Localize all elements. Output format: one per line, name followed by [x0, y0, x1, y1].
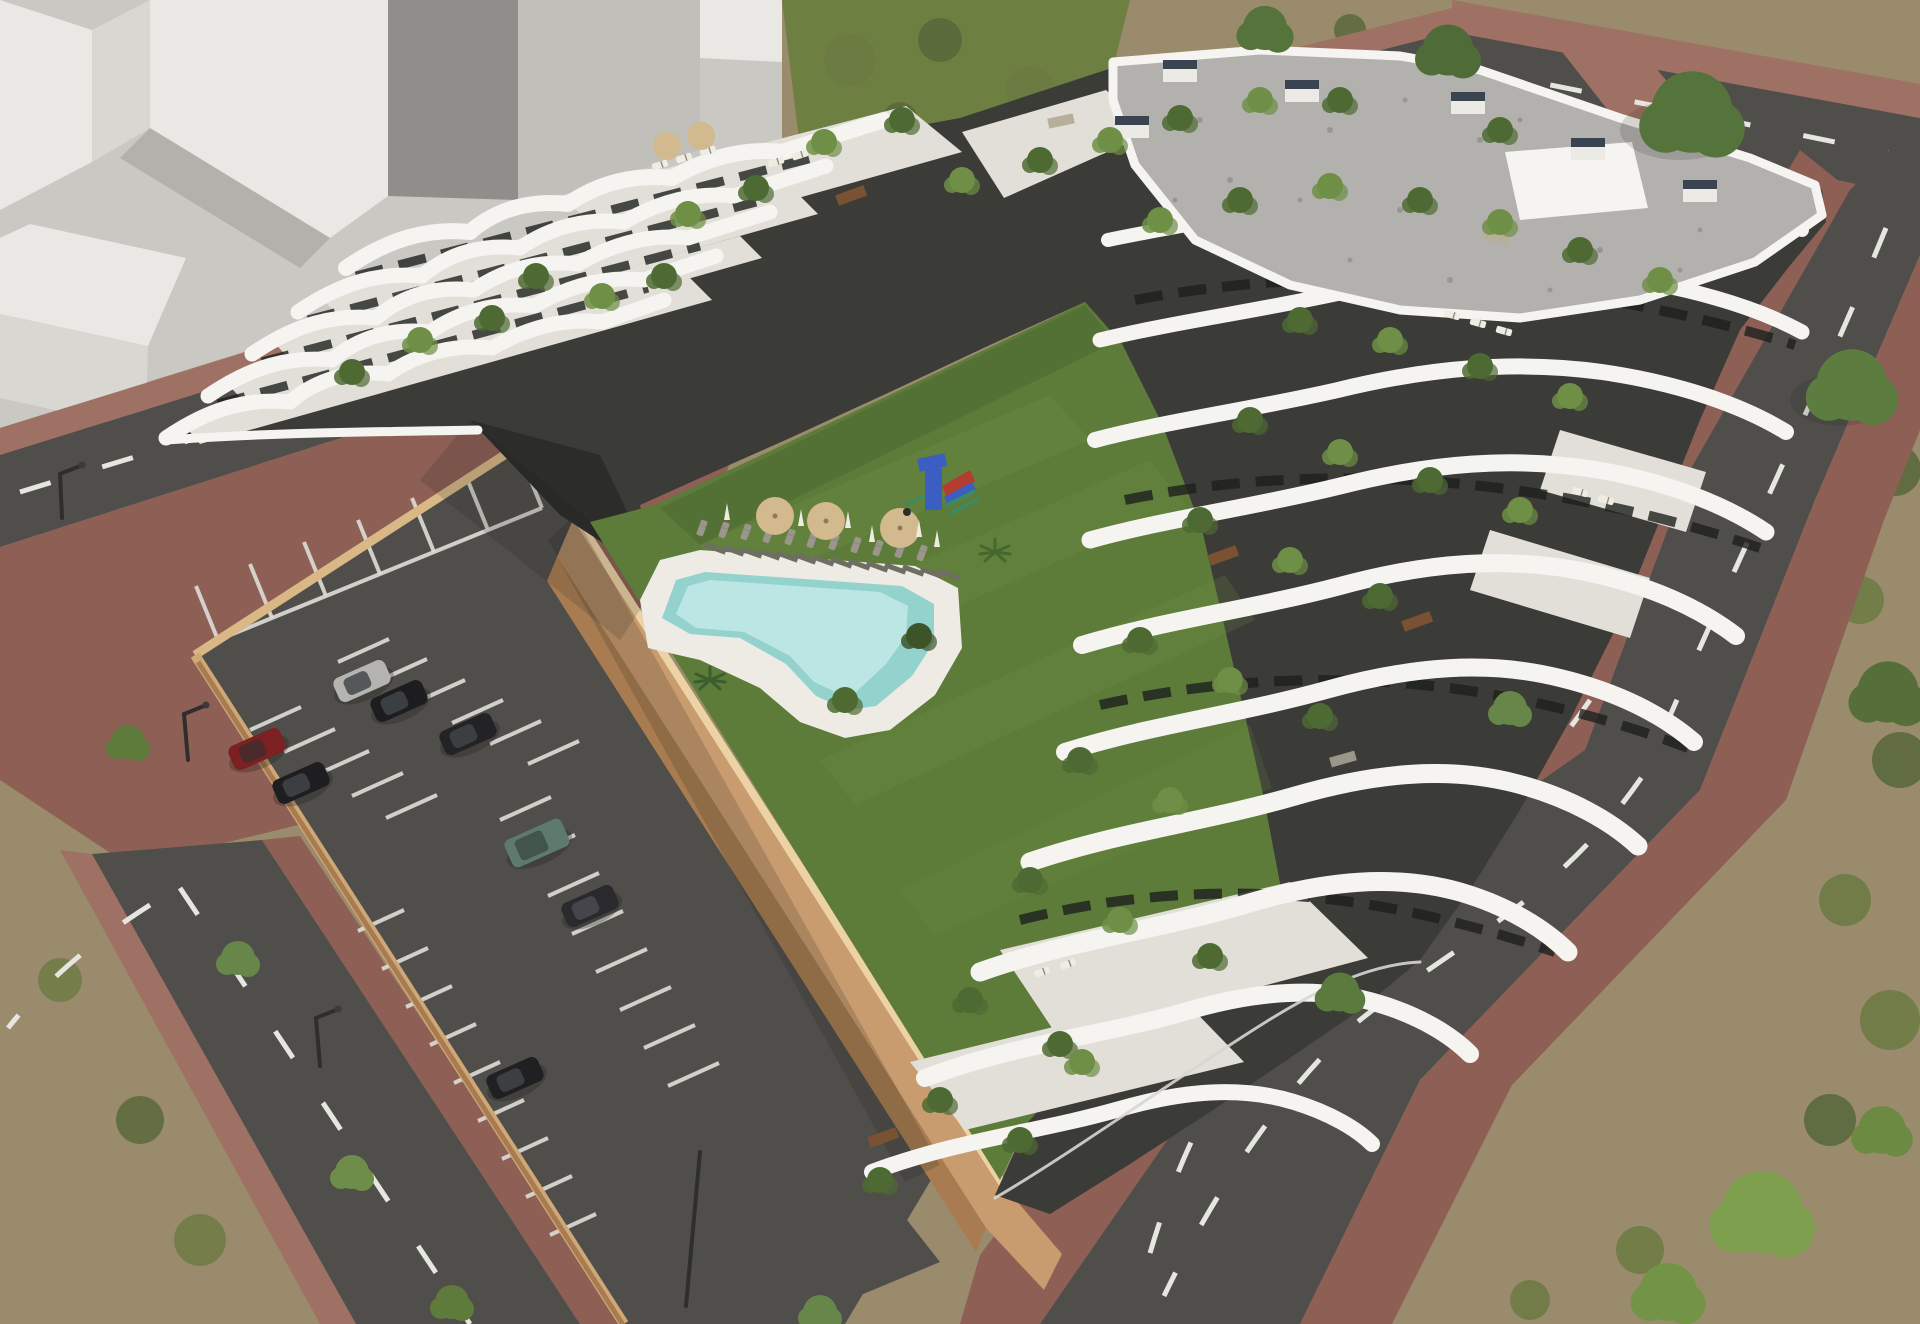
massing-shadow-wedge	[388, 0, 518, 200]
roof-vent-4	[1571, 138, 1605, 160]
massing-small-slab	[700, 0, 782, 62]
rooftop-umbrella-2	[687, 122, 715, 150]
roof-vent-2	[1285, 80, 1319, 102]
roof-vent-5	[1683, 180, 1717, 202]
scene-canvas	[0, 0, 1920, 1324]
roof-vent-3	[1451, 92, 1485, 114]
rooftop-umbrella-1	[653, 132, 681, 160]
aerial-render	[0, 0, 1920, 1324]
roof-vent-1	[1163, 60, 1197, 82]
